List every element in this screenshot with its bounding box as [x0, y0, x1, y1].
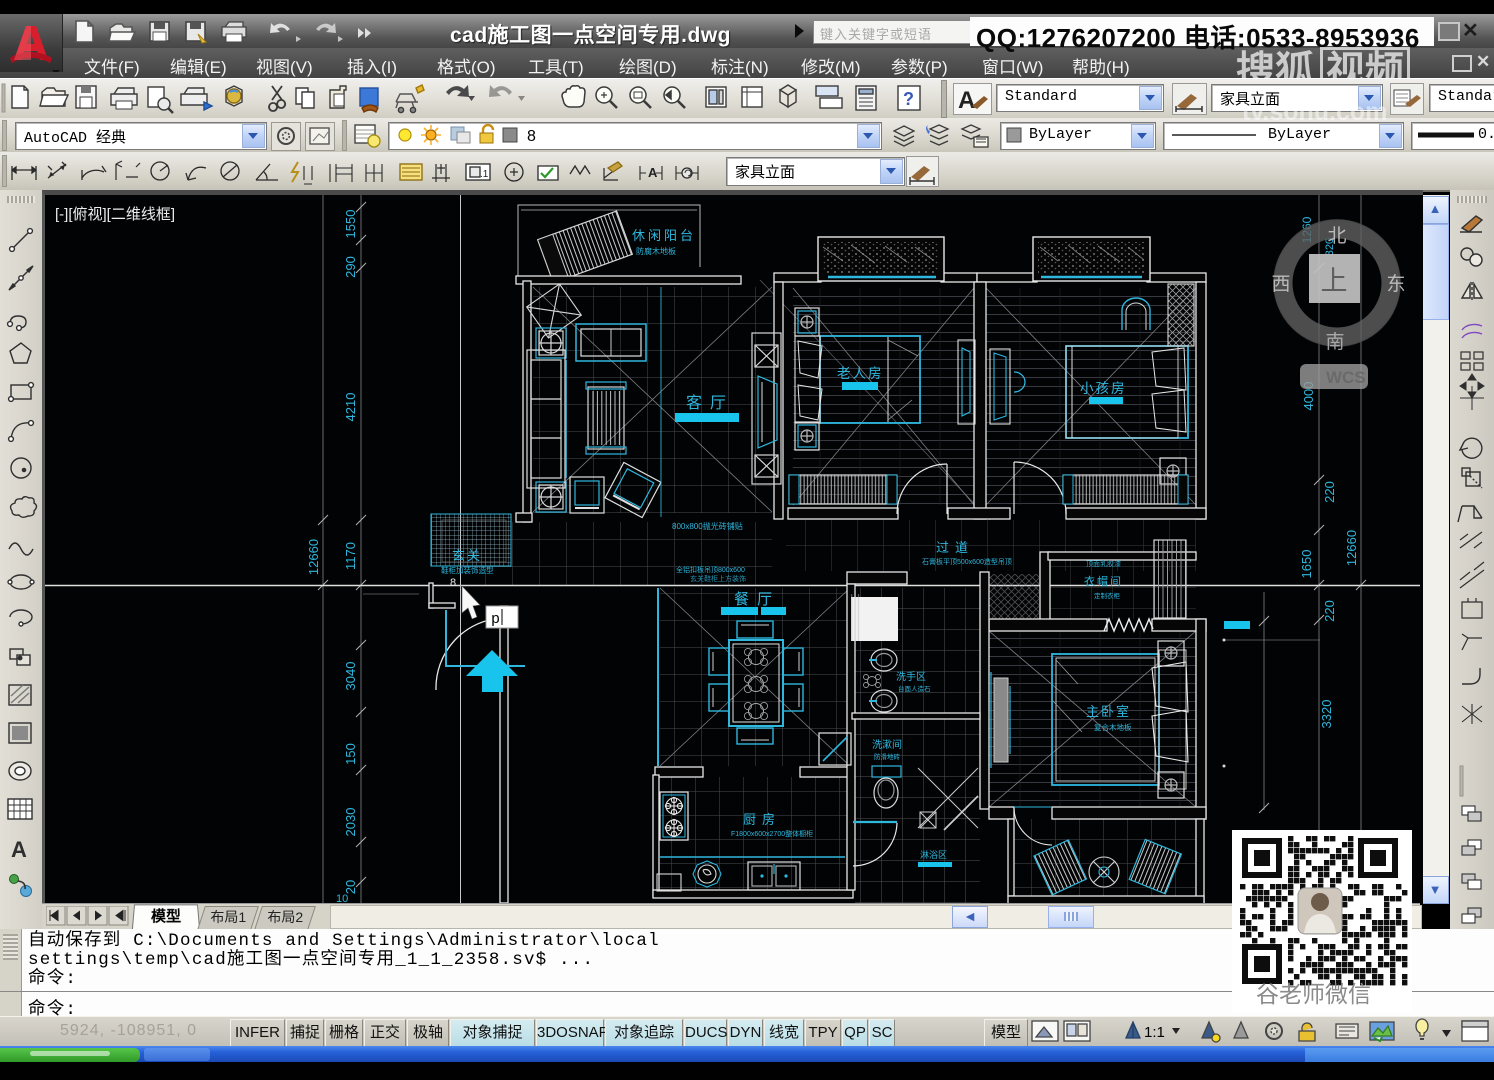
- svg-text:小孩房: 小孩房: [1080, 381, 1127, 396]
- svg-text:南: 南: [1325, 331, 1344, 353]
- svg-text:.1: .1: [480, 169, 489, 180]
- svg-text:A: A: [958, 87, 975, 114]
- svg-text:A: A: [11, 837, 27, 862]
- svg-text:220: 220: [1322, 481, 1337, 503]
- svg-text:休闲阳台: 休闲阳台: [632, 228, 696, 243]
- svg-text:1170: 1170: [343, 542, 358, 570]
- svg-text:10: 10: [336, 893, 348, 903]
- svg-text:客厅: 客厅: [686, 394, 734, 412]
- svg-text:东: 东: [1386, 273, 1405, 295]
- svg-text:衣帽间: 衣帽间: [1084, 574, 1123, 588]
- svg-text:石膏板平顶500x600造型吊顶: 石膏板平顶500x600造型吊顶: [922, 557, 1012, 566]
- svg-text:厨房: 厨房: [743, 812, 781, 827]
- svg-text:全铝扣板吊顶800x600: 全铝扣板吊顶800x600: [676, 565, 745, 574]
- svg-text:?: ?: [903, 89, 914, 109]
- svg-text:北: 北: [1327, 225, 1346, 247]
- svg-text:防腐木地板: 防腐木地板: [636, 246, 676, 256]
- svg-text:1:1: 1:1: [1144, 1024, 1165, 1041]
- svg-text:1650: 1650: [1299, 550, 1314, 579]
- svg-text:上: 上: [1321, 266, 1348, 296]
- svg-text:WCS: WCS: [1326, 368, 1366, 387]
- svg-text:12660: 12660: [1344, 530, 1359, 566]
- svg-text:洗手区: 洗手区: [896, 670, 926, 683]
- svg-text:淋浴区: 淋浴区: [920, 849, 947, 860]
- svg-text:主卧室: 主卧室: [1086, 704, 1131, 719]
- svg-text:玄关鞋柜上方装饰: 玄关鞋柜上方装饰: [690, 574, 746, 583]
- svg-text:150: 150: [343, 743, 358, 765]
- svg-text:220: 220: [1322, 600, 1337, 622]
- svg-text:洗漱间: 洗漱间: [872, 738, 902, 751]
- svg-text:1550: 1550: [343, 210, 358, 239]
- svg-text:800x800抛光砖铺贴: 800x800抛光砖铺贴: [672, 521, 743, 531]
- svg-text:A: A: [648, 165, 658, 180]
- svg-text:台面人造石: 台面人造石: [898, 684, 931, 693]
- svg-text:鞋柜加装饰造型: 鞋柜加装饰造型: [441, 565, 494, 575]
- svg-text:8: 8: [527, 128, 536, 145]
- svg-text:防滑地砖: 防滑地砖: [874, 752, 901, 761]
- svg-text:顶面乳胶漆: 顶面乳胶漆: [1086, 559, 1121, 568]
- svg-text:3320: 3320: [1319, 700, 1334, 729]
- svg-text:290: 290: [343, 256, 358, 278]
- svg-text:p: p: [491, 611, 500, 628]
- svg-text:老人房: 老人房: [837, 366, 884, 381]
- svg-text:12660: 12660: [306, 539, 321, 575]
- svg-text:4210: 4210: [343, 393, 358, 422]
- svg-text:复合木地板: 复合木地板: [1094, 722, 1132, 732]
- svg-text:3040: 3040: [343, 662, 358, 691]
- svg-text:过道: 过道: [936, 540, 974, 555]
- svg-text:餐厅: 餐厅: [734, 591, 780, 608]
- svg-text:2030: 2030: [343, 808, 358, 837]
- svg-text:定制衣柜: 定制衣柜: [1094, 591, 1121, 600]
- svg-text:F1800x600x2700整体橱柜: F1800x600x2700整体橱柜: [731, 829, 813, 838]
- svg-text:谷老师微信: 谷老师微信: [1256, 981, 1371, 1007]
- svg-text:[-][俯视][二维线框]: [-][俯视][二维线框]: [55, 206, 175, 223]
- svg-text:西: 西: [1271, 274, 1290, 295]
- svg-text:8: 8: [450, 577, 456, 589]
- svg-text:玄关: 玄关: [452, 548, 482, 563]
